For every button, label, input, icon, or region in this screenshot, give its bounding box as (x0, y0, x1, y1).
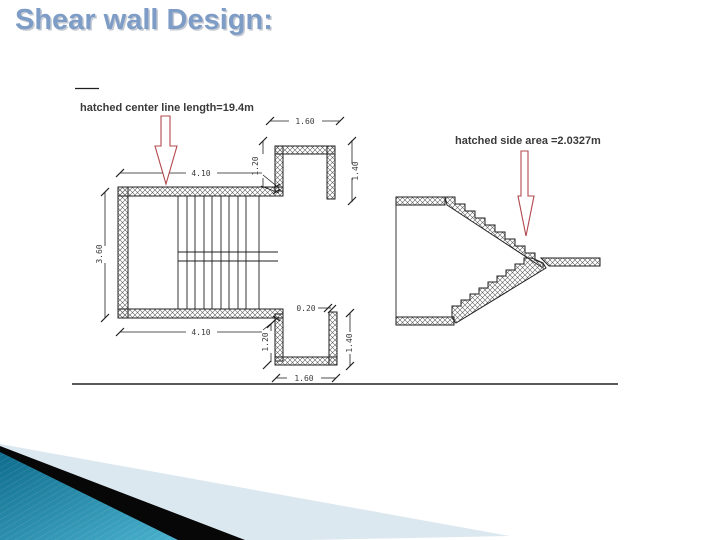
dim-label-bottom-landing-depth: 1.20 (261, 332, 270, 351)
dim-label-bottom-landing-width: 1.60 (294, 374, 313, 383)
annotation-side-area-label: hatched side area =2.0327m (455, 135, 601, 147)
dim-left-height: 3.60 (95, 188, 109, 322)
dim-label-bottom-width: 4.10 (191, 328, 210, 337)
dim-bottom-landing-depth: 1.20 (261, 320, 275, 369)
dim-label-wall-thickness: 0.20 (296, 304, 315, 313)
corner-decoration (0, 444, 510, 540)
wall-bottom-landing-left (275, 314, 283, 361)
wall-top-landing-top (275, 146, 335, 154)
dim-top-landing-width: 1.60 (266, 117, 344, 126)
annotation-arrow-center-line (155, 116, 177, 184)
section-bottom-slab (396, 317, 454, 325)
dim-label-top-landing-depth: 1.20 (251, 156, 260, 175)
slide: Shear wall Design: hatched center line l… (0, 0, 720, 540)
dim-wall-thickness: 0.20 (296, 304, 336, 313)
annotation-arrow-side-area (518, 151, 534, 236)
section-top-slab (396, 197, 445, 205)
stair-treads (178, 196, 278, 309)
stair-plan-view: 4.10 1.60 1.20 (95, 117, 360, 383)
dim-label-left-height: 3.60 (95, 244, 104, 263)
dim-top-landing-height: 1.40 (348, 137, 360, 205)
annotation-center-line-label: hatched center line length=19.4m (80, 102, 254, 114)
dim-label-top-landing-height: 1.40 (351, 161, 360, 180)
wall-left (118, 187, 128, 318)
wall-top-landing-right (327, 146, 335, 199)
dim-label-top-width: 4.10 (191, 169, 210, 178)
section-landing-slab (541, 258, 600, 266)
wall-bottom-landing-right (329, 312, 337, 365)
wall-top (118, 187, 283, 196)
drawing-canvas: hatched center line length=19.4m hatched… (0, 0, 720, 540)
dim-bottom-width: 4.10 (116, 316, 280, 337)
dim-bottom-landing-height: 1.40 (345, 309, 354, 370)
wall-bottom (118, 309, 283, 318)
dim-bottom-landing-width: 1.60 (272, 374, 340, 383)
dim-label-top-landing-width: 1.60 (295, 117, 314, 126)
section-lower-flight (452, 258, 546, 323)
stair-section-view (396, 197, 600, 325)
wall-bottom-landing-bottom (275, 357, 337, 365)
dim-label-bottom-landing-height: 1.40 (345, 333, 354, 352)
